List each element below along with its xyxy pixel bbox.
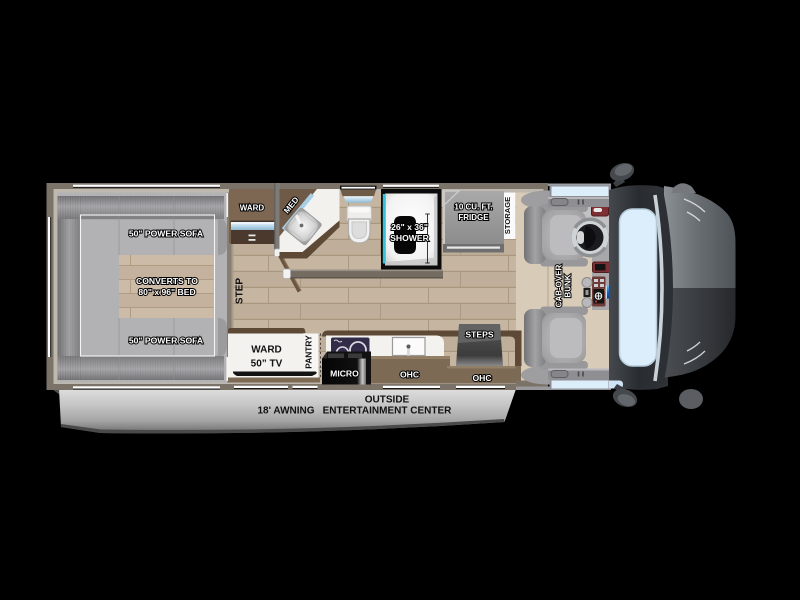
svg-text:50" POWER SOFA: 50" POWER SOFA — [129, 336, 203, 346]
svg-text:ENTERTAINMENT CENTER: ENTERTAINMENT CENTER — [323, 406, 452, 417]
svg-text:FRIDGE: FRIDGE — [458, 213, 489, 222]
svg-text:WARD: WARD — [251, 345, 282, 356]
svg-text:BUNK: BUNK — [564, 274, 573, 297]
svg-text:10 CU. FT.: 10 CU. FT. — [454, 203, 492, 212]
svg-text:PANTRY: PANTRY — [304, 335, 314, 369]
svg-text:STORAGE: STORAGE — [503, 197, 512, 234]
svg-text:50" POWER SOFA: 50" POWER SOFA — [129, 229, 203, 239]
svg-text:SHOWER: SHOWER — [390, 233, 429, 243]
svg-text:MICRO: MICRO — [330, 369, 359, 379]
svg-text:80" x 96" BED: 80" x 96" BED — [138, 287, 195, 297]
svg-text:WARD: WARD — [240, 204, 265, 213]
svg-text:18' AWNING: 18' AWNING — [257, 406, 314, 417]
svg-text:50” TV: 50” TV — [251, 359, 283, 370]
svg-text:26" x 36": 26" x 36" — [391, 222, 428, 232]
svg-text:OUTSIDE: OUTSIDE — [365, 395, 410, 406]
svg-text:CONVERTS TO: CONVERTS TO — [136, 276, 198, 286]
svg-text:CAB-OVER: CAB-OVER — [555, 264, 564, 307]
svg-text:STEPS: STEPS — [465, 330, 493, 340]
svg-text:OHC: OHC — [472, 373, 491, 383]
svg-text:OHC: OHC — [400, 370, 419, 380]
svg-text:STEP: STEP — [235, 278, 246, 304]
